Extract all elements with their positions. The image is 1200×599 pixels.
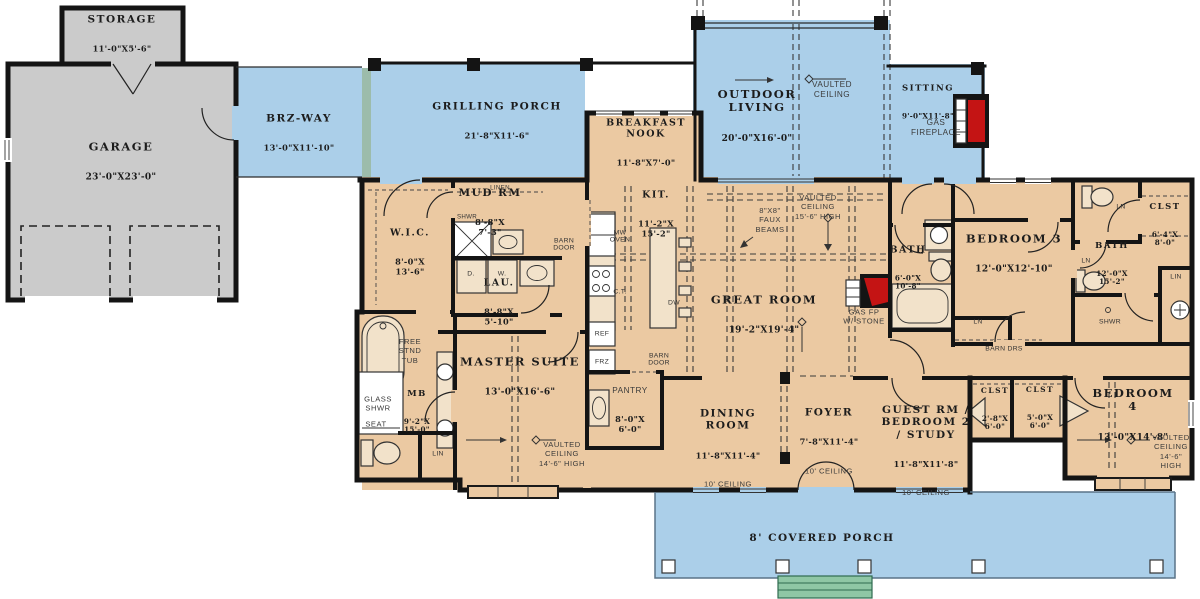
- bedroom4-bay-window: [1095, 478, 1171, 490]
- breezeway-gate: [362, 68, 371, 177]
- mud-sink: [493, 230, 523, 254]
- porch-steps: [778, 576, 872, 598]
- toilet: [1091, 188, 1113, 206]
- post: [971, 62, 984, 75]
- porch-post: [858, 560, 871, 573]
- floor-plan-drawing: [0, 0, 1200, 599]
- refrigerator: [589, 322, 615, 346]
- stool: [679, 286, 691, 295]
- post: [580, 58, 593, 71]
- porch-post: [1150, 560, 1163, 573]
- kitchen-island: [650, 228, 676, 328]
- roof-lines: [697, 0, 890, 18]
- bath3-tub: [892, 284, 953, 328]
- shared-toilet: [1083, 272, 1105, 290]
- glass-shower: [359, 372, 403, 434]
- breezeway-floor: [236, 67, 362, 177]
- porch-post: [972, 560, 985, 573]
- pantry-counter: [589, 390, 609, 426]
- stool: [679, 262, 691, 271]
- post: [874, 16, 888, 30]
- post: [691, 16, 705, 30]
- washer: [488, 260, 517, 293]
- porch-post: [662, 560, 675, 573]
- grilling-porch-floor: [371, 63, 585, 177]
- bath3-toilet: [931, 259, 951, 281]
- stool: [679, 308, 691, 317]
- mb-sink: [437, 364, 453, 380]
- post: [467, 58, 480, 71]
- column-stub: [780, 452, 790, 464]
- floor-plan: STORAGE 11'-0"X5'-6" GARAGE 23'-0"X23'-0…: [0, 0, 1200, 599]
- column-stub: [780, 372, 790, 384]
- mb-toilet-tank: [361, 440, 373, 466]
- master-bay-window: [468, 486, 558, 498]
- covered-porch-floor: [655, 492, 1175, 578]
- laundry-sink: [520, 260, 554, 286]
- cooktop: [589, 266, 615, 296]
- porch-post: [776, 560, 789, 573]
- dryer: [457, 260, 486, 293]
- outdoor-living-floor: [693, 20, 890, 180]
- mb-toilet: [374, 442, 400, 464]
- post: [368, 58, 381, 71]
- stool: [679, 238, 691, 247]
